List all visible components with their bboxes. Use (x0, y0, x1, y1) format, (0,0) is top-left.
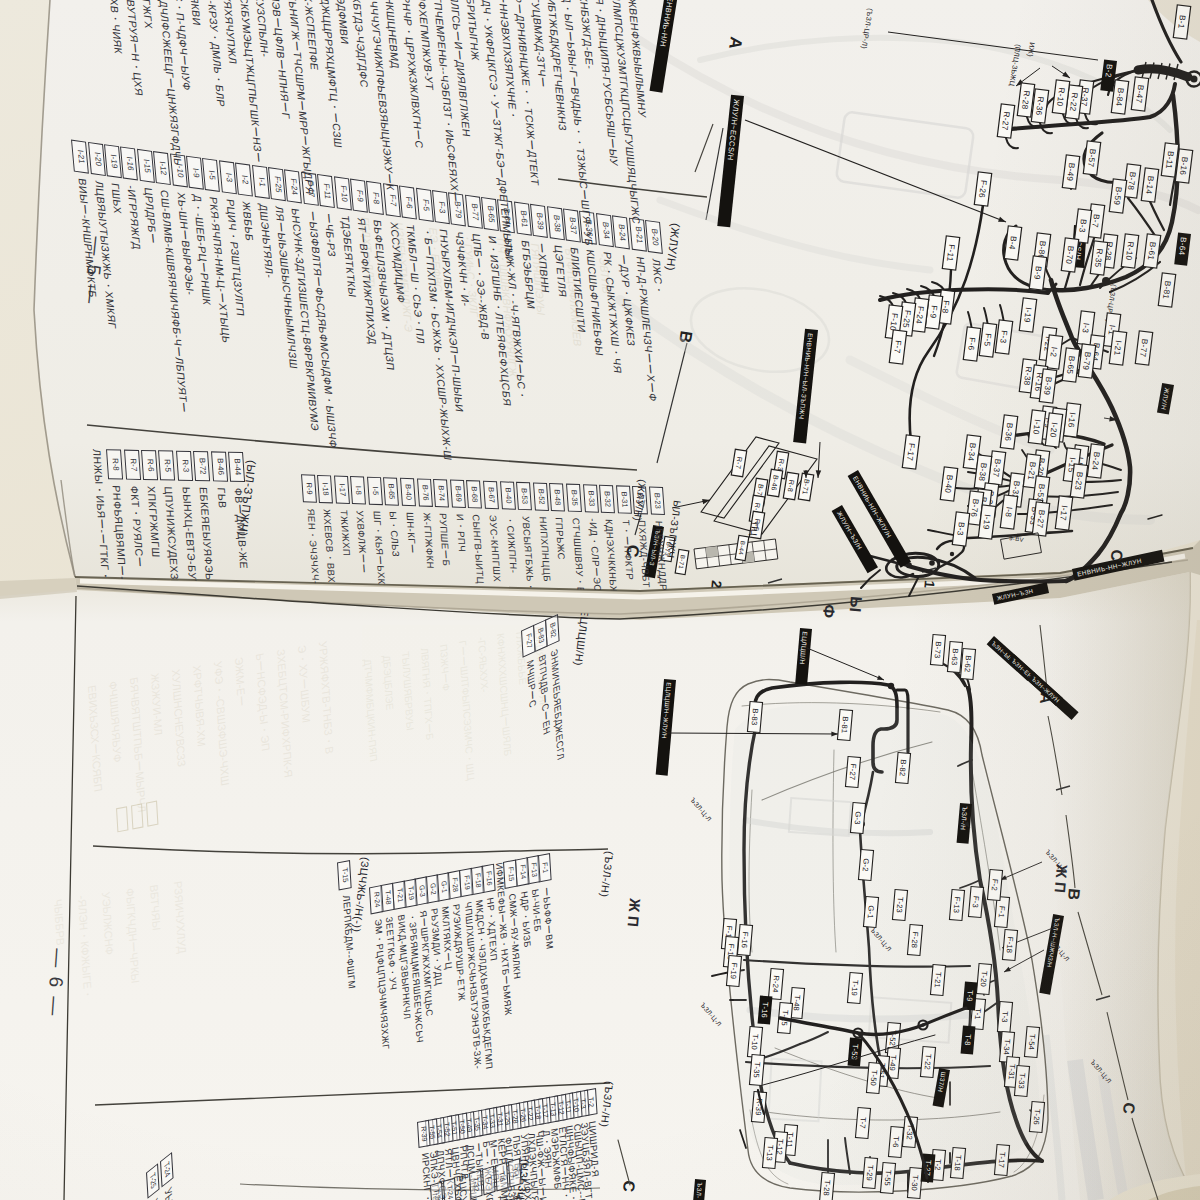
svg-text:1: 1 (921, 580, 938, 589)
